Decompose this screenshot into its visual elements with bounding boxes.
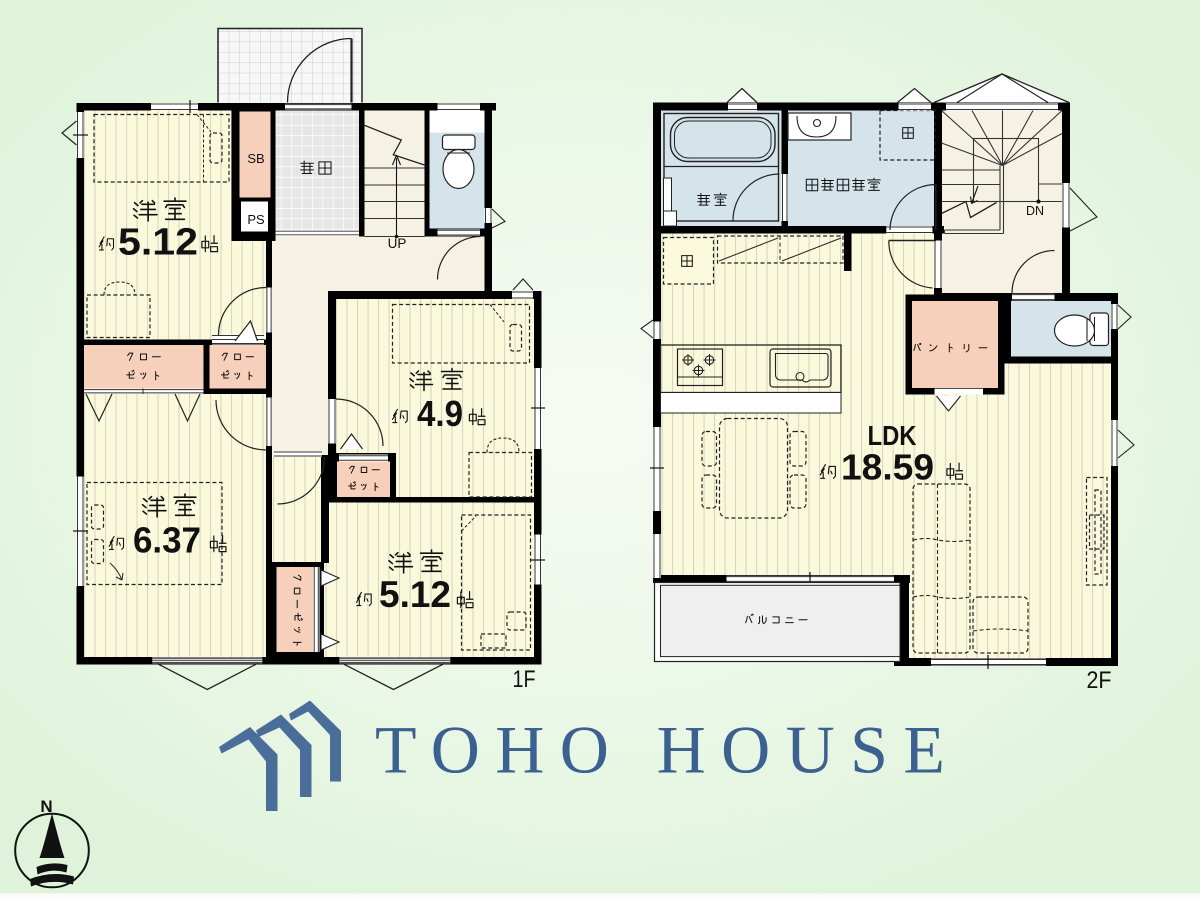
svg-text:SB: SB [247, 151, 264, 166]
svg-text:PS: PS [247, 212, 265, 227]
svg-text:UP: UP [388, 236, 407, 251]
svg-text:1F: 1F [513, 666, 536, 693]
svg-text:4.9: 4.9 [417, 393, 463, 434]
svg-text:5.12: 5.12 [379, 574, 451, 615]
svg-text:DN: DN [1026, 204, 1044, 218]
svg-text:18.59: 18.59 [841, 447, 934, 488]
svg-text:6.37: 6.37 [133, 520, 201, 561]
svg-text:TOHO HOUSE: TOHO HOUSE [375, 712, 960, 788]
svg-text:5.12: 5.12 [118, 222, 198, 264]
svg-text:N: N [40, 797, 52, 816]
svg-text:2F: 2F [1087, 667, 1112, 694]
